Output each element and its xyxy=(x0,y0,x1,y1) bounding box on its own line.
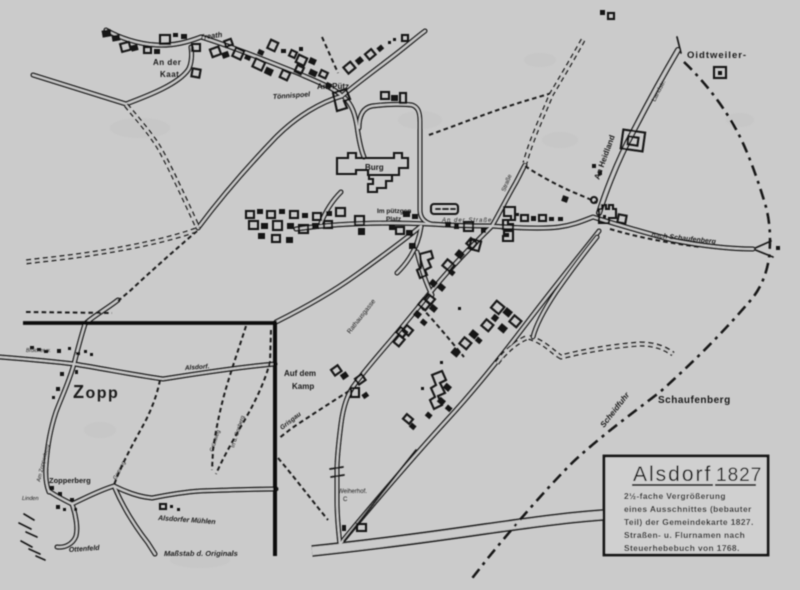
svg-text:Oidtweiler-: Oidtweiler- xyxy=(687,50,747,61)
svg-text:eines Ausschnittes (bebauter: eines Ausschnittes (bebauter xyxy=(624,504,752,514)
svg-text:Am Pütz: Am Pütz xyxy=(317,82,349,91)
svg-text:Maßstab d. Originals: Maßstab d. Originals xyxy=(164,549,238,558)
svg-text:Kamp: Kamp xyxy=(292,382,314,391)
svg-text:2½-fache Vergrößerung: 2½-fache Vergrößerung xyxy=(624,491,726,501)
svg-text:C: C xyxy=(343,497,348,503)
svg-text:Platz: Platz xyxy=(386,216,402,223)
svg-text:Schaufenberg: Schaufenberg xyxy=(658,395,731,406)
svg-text:Teil) der Gemeindekarte 1827.: Teil) der Gemeindekarte 1827. xyxy=(624,517,754,527)
svg-text:Linden: Linden xyxy=(22,496,39,502)
svg-text:Burg: Burg xyxy=(365,163,384,172)
svg-text:Im pützgen: Im pützgen xyxy=(377,208,411,215)
svg-text:Weiherhof.: Weiherhof. xyxy=(338,489,367,495)
svg-text:Broicher w.: Broicher w. xyxy=(26,348,51,354)
svg-text:Zopp: Zopp xyxy=(73,382,119,402)
svg-text:1827: 1827 xyxy=(716,465,762,486)
svg-text:Steuerhebebuch von 1768.: Steuerhebebuch von 1768. xyxy=(624,543,740,553)
svg-text:Auf dem: Auf dem xyxy=(284,369,316,378)
svg-text:Straßen- u. Flurnamen nach: Straßen- u. Flurnamen nach xyxy=(624,530,745,540)
svg-text:Kaat: Kaat xyxy=(160,70,179,79)
svg-text:An der Straße: An der Straße xyxy=(441,218,492,224)
svg-text:Alsdorf: Alsdorf xyxy=(633,463,712,486)
svg-text:Zopperberg: Zopperberg xyxy=(49,476,91,485)
svg-text:An der: An der xyxy=(153,58,181,67)
